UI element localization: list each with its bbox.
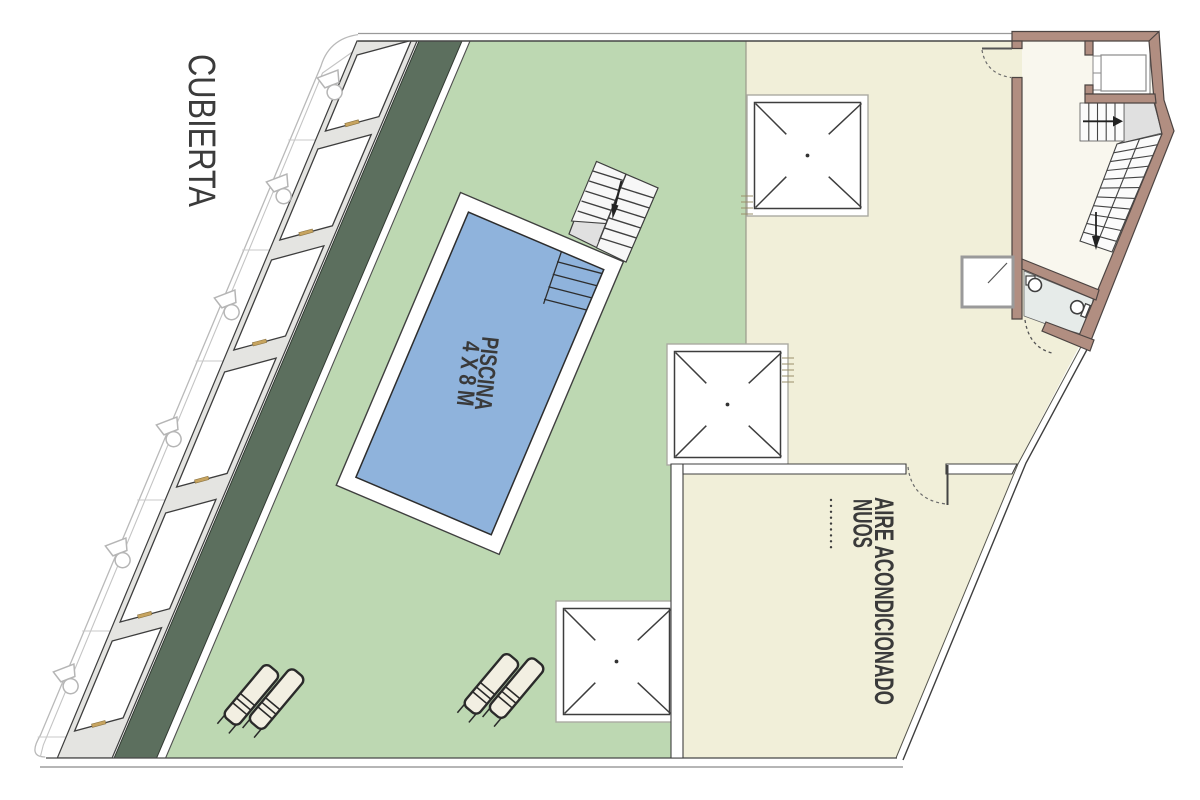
svg-text:CUBIERTA: CUBIERTA [180,54,222,208]
svg-text:NUOS: NUOS [848,499,878,548]
